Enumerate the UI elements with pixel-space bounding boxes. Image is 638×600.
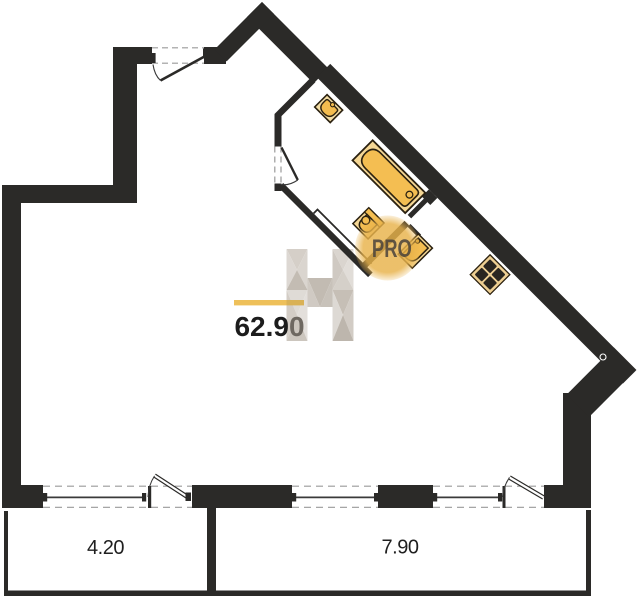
svg-text:7.90: 7.90	[382, 537, 419, 559]
svg-text:4.20: 4.20	[87, 537, 124, 559]
svg-text:PRO: PRO	[372, 235, 412, 263]
svg-text:62.90: 62.90	[234, 311, 304, 342]
